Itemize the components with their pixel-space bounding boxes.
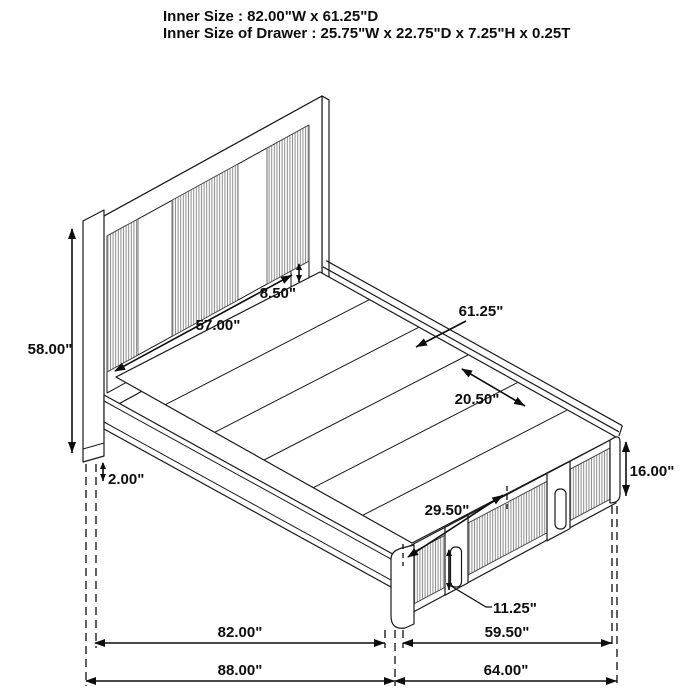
headboard-leg-left bbox=[83, 210, 104, 462]
dim-overall-depth: 64.00" bbox=[395, 662, 617, 681]
dim-overall-height: 58.00" bbox=[28, 229, 73, 453]
dim-headboard-width-label: 57.00" bbox=[196, 317, 241, 334]
bed-isometric-drawing: 58.00" 57.00" 8.50" 61.25" 20.50" 29.50" bbox=[0, 0, 700, 700]
dim-inner-depth: 61.25" bbox=[416, 303, 503, 347]
dim-drawer-front-height-leader bbox=[451, 586, 492, 607]
drawer-handle-front bbox=[451, 547, 462, 587]
dim-inner-width-label: 82.00" bbox=[218, 624, 263, 641]
dim-drawer-area-width: 59.50" bbox=[403, 624, 612, 643]
headboard-flute-panel-left bbox=[107, 219, 138, 372]
dim-rail-offset-label: 8.50" bbox=[260, 285, 296, 302]
dim-floor-clearance: 2.00" bbox=[103, 463, 144, 488]
dim-overall-width: 88.00" bbox=[86, 662, 395, 681]
dim-platform-height-label: 16.00" bbox=[630, 463, 675, 480]
drawer-handle-rear bbox=[555, 489, 566, 529]
dim-drawer-span-label: 29.50" bbox=[425, 502, 470, 519]
dim-floor-clearance-label: 2.00" bbox=[108, 471, 144, 488]
right-corner-post bbox=[610, 437, 620, 503]
dim-drawer-front-height-label: 11.25" bbox=[493, 600, 537, 617]
dim-inner-depth-label: 61.25" bbox=[459, 303, 504, 320]
dim-overall-width-label: 88.00" bbox=[218, 662, 263, 679]
dim-platform-height: 16.00" bbox=[626, 442, 674, 496]
dim-overall-depth-label: 64.00" bbox=[484, 662, 529, 679]
bed-dimension-diagram: Inner Size : 82.00"W x 61.25"D Inner Siz… bbox=[0, 0, 700, 700]
dim-inner-width: 82.00" bbox=[95, 624, 385, 643]
dim-overall-height-label: 58.00" bbox=[28, 341, 73, 358]
dim-deck-segment-label: 20.50" bbox=[455, 391, 500, 408]
headboard-side-edge bbox=[322, 96, 329, 292]
dim-drawer-area-width-label: 59.50" bbox=[485, 624, 530, 641]
headboard-flute-panel-right bbox=[267, 125, 309, 284]
